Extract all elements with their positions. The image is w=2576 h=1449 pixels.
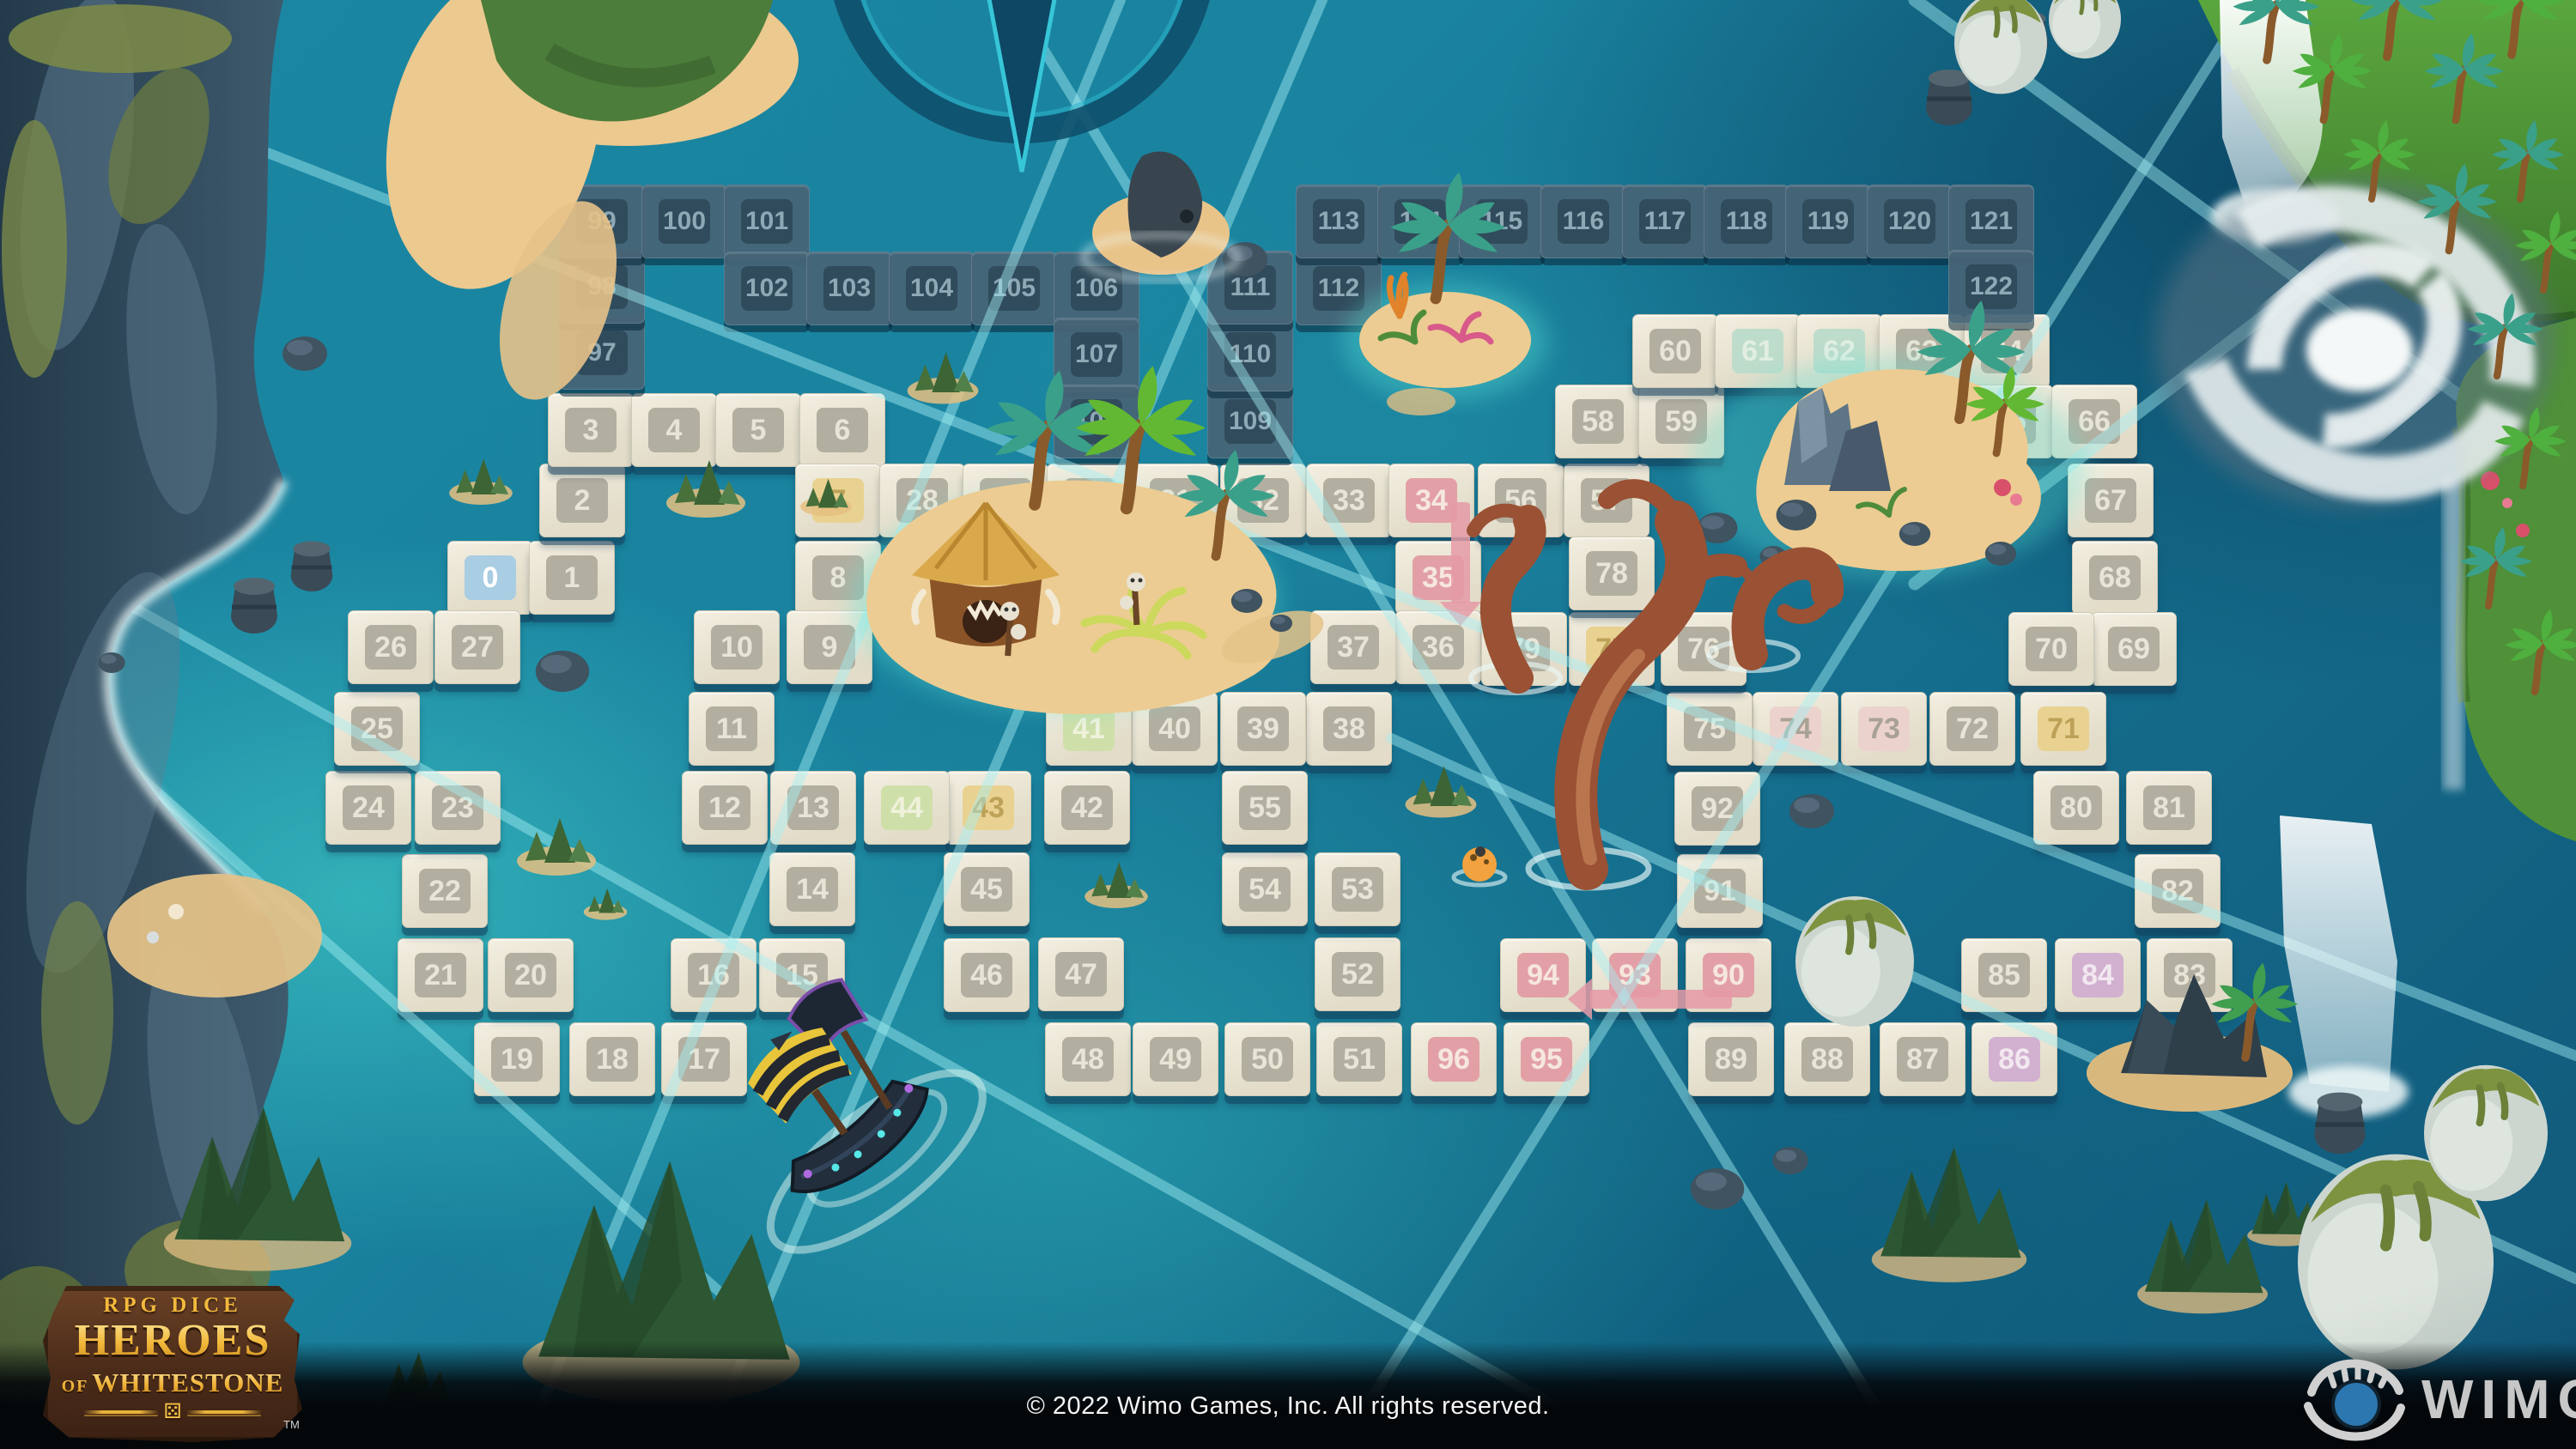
hut — [912, 503, 1060, 646]
trademark-symbol: TM — [283, 1418, 300, 1431]
game-map: 0123456789101112131415161718192021222324… — [0, 0, 2576, 1449]
pufferfish — [1454, 846, 1505, 885]
logo-line-rpg-dice: RPG DICE — [43, 1294, 302, 1318]
game-logo: RPG DICE HEROES OF WHITESTONE ⚄ — [43, 1286, 302, 1442]
logo-line-whitestone: OF WHITESTONE — [43, 1367, 302, 1398]
scenery-over — [0, 0, 2576, 1449]
kraken-tentacles — [1471, 488, 1827, 888]
wimo-shell-icon — [2300, 1356, 2409, 1442]
palm-islet — [1381, 173, 1506, 342]
copyright-text: © 2022 Wimo Games, Inc. All rights reser… — [0, 1392, 2576, 1421]
logo-line-heroes: HEROES — [43, 1315, 302, 1366]
yellow-fern — [1084, 579, 1203, 656]
wimo-wordmark: WIMO — [2421, 1367, 2576, 1431]
rock-island — [1777, 300, 2045, 546]
dice-icon: ⚄ — [164, 1404, 182, 1420]
wimo-logo: WIMO — [2300, 1356, 2576, 1442]
logo-flourish: ⚄ — [43, 1404, 302, 1420]
pirate-ship — [667, 944, 1008, 1280]
hut-island — [912, 366, 1292, 656]
